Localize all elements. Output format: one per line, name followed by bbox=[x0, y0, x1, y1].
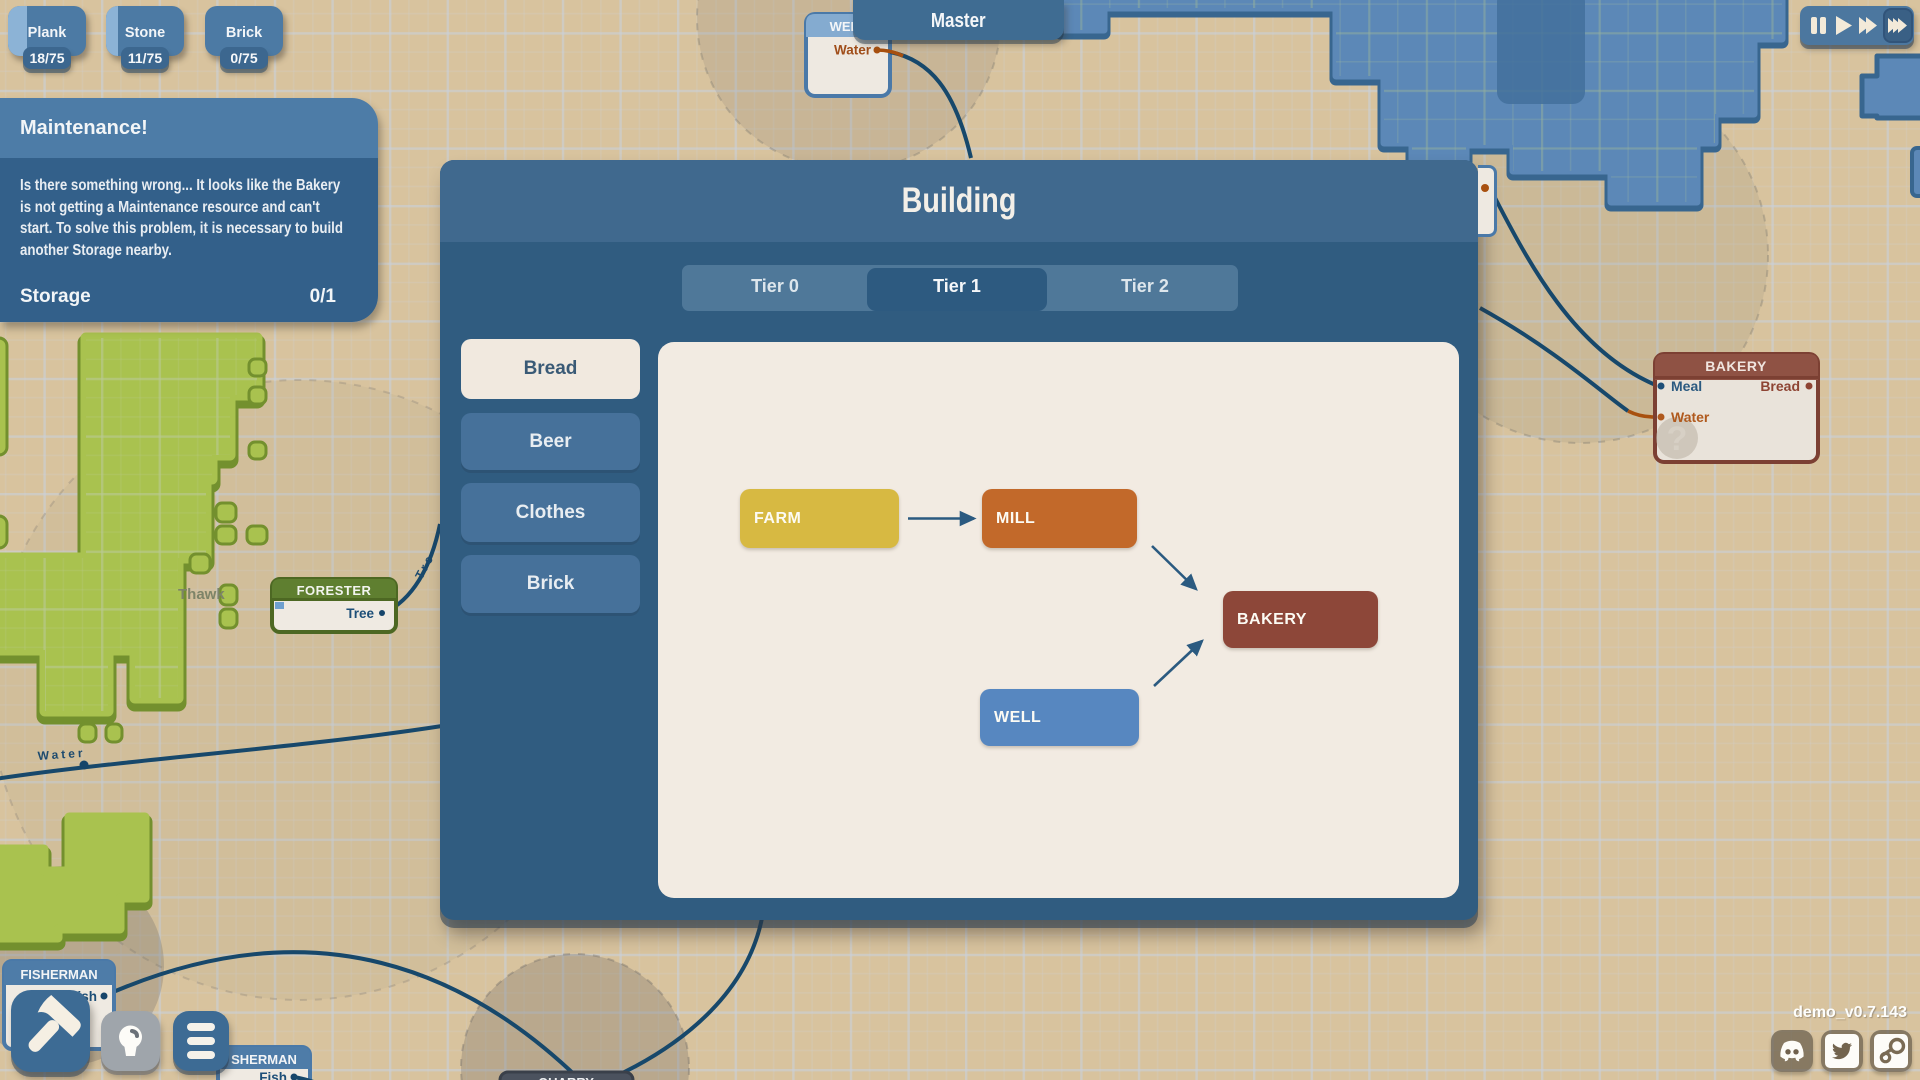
svg-text:Thawk: Thawk bbox=[178, 586, 225, 603]
svg-text:QUARRY: QUARRY bbox=[538, 1075, 594, 1080]
svg-text:SHERMAN: SHERMAN bbox=[231, 1052, 297, 1067]
svg-text:Tree: Tree bbox=[346, 606, 374, 621]
svg-text:FORESTER: FORESTER bbox=[297, 583, 372, 598]
svg-text:Water: Water bbox=[1671, 409, 1710, 425]
svg-text:FISHERMAN: FISHERMAN bbox=[20, 967, 97, 982]
svg-text:Fish: Fish bbox=[259, 1070, 287, 1080]
svg-text:Water: Water bbox=[834, 43, 872, 58]
svg-text:Meal: Meal bbox=[1671, 378, 1702, 394]
svg-text:?: ? bbox=[1667, 420, 1688, 458]
svg-text:BAKERY: BAKERY bbox=[1705, 358, 1767, 374]
svg-text:Bread: Bread bbox=[1760, 378, 1800, 394]
